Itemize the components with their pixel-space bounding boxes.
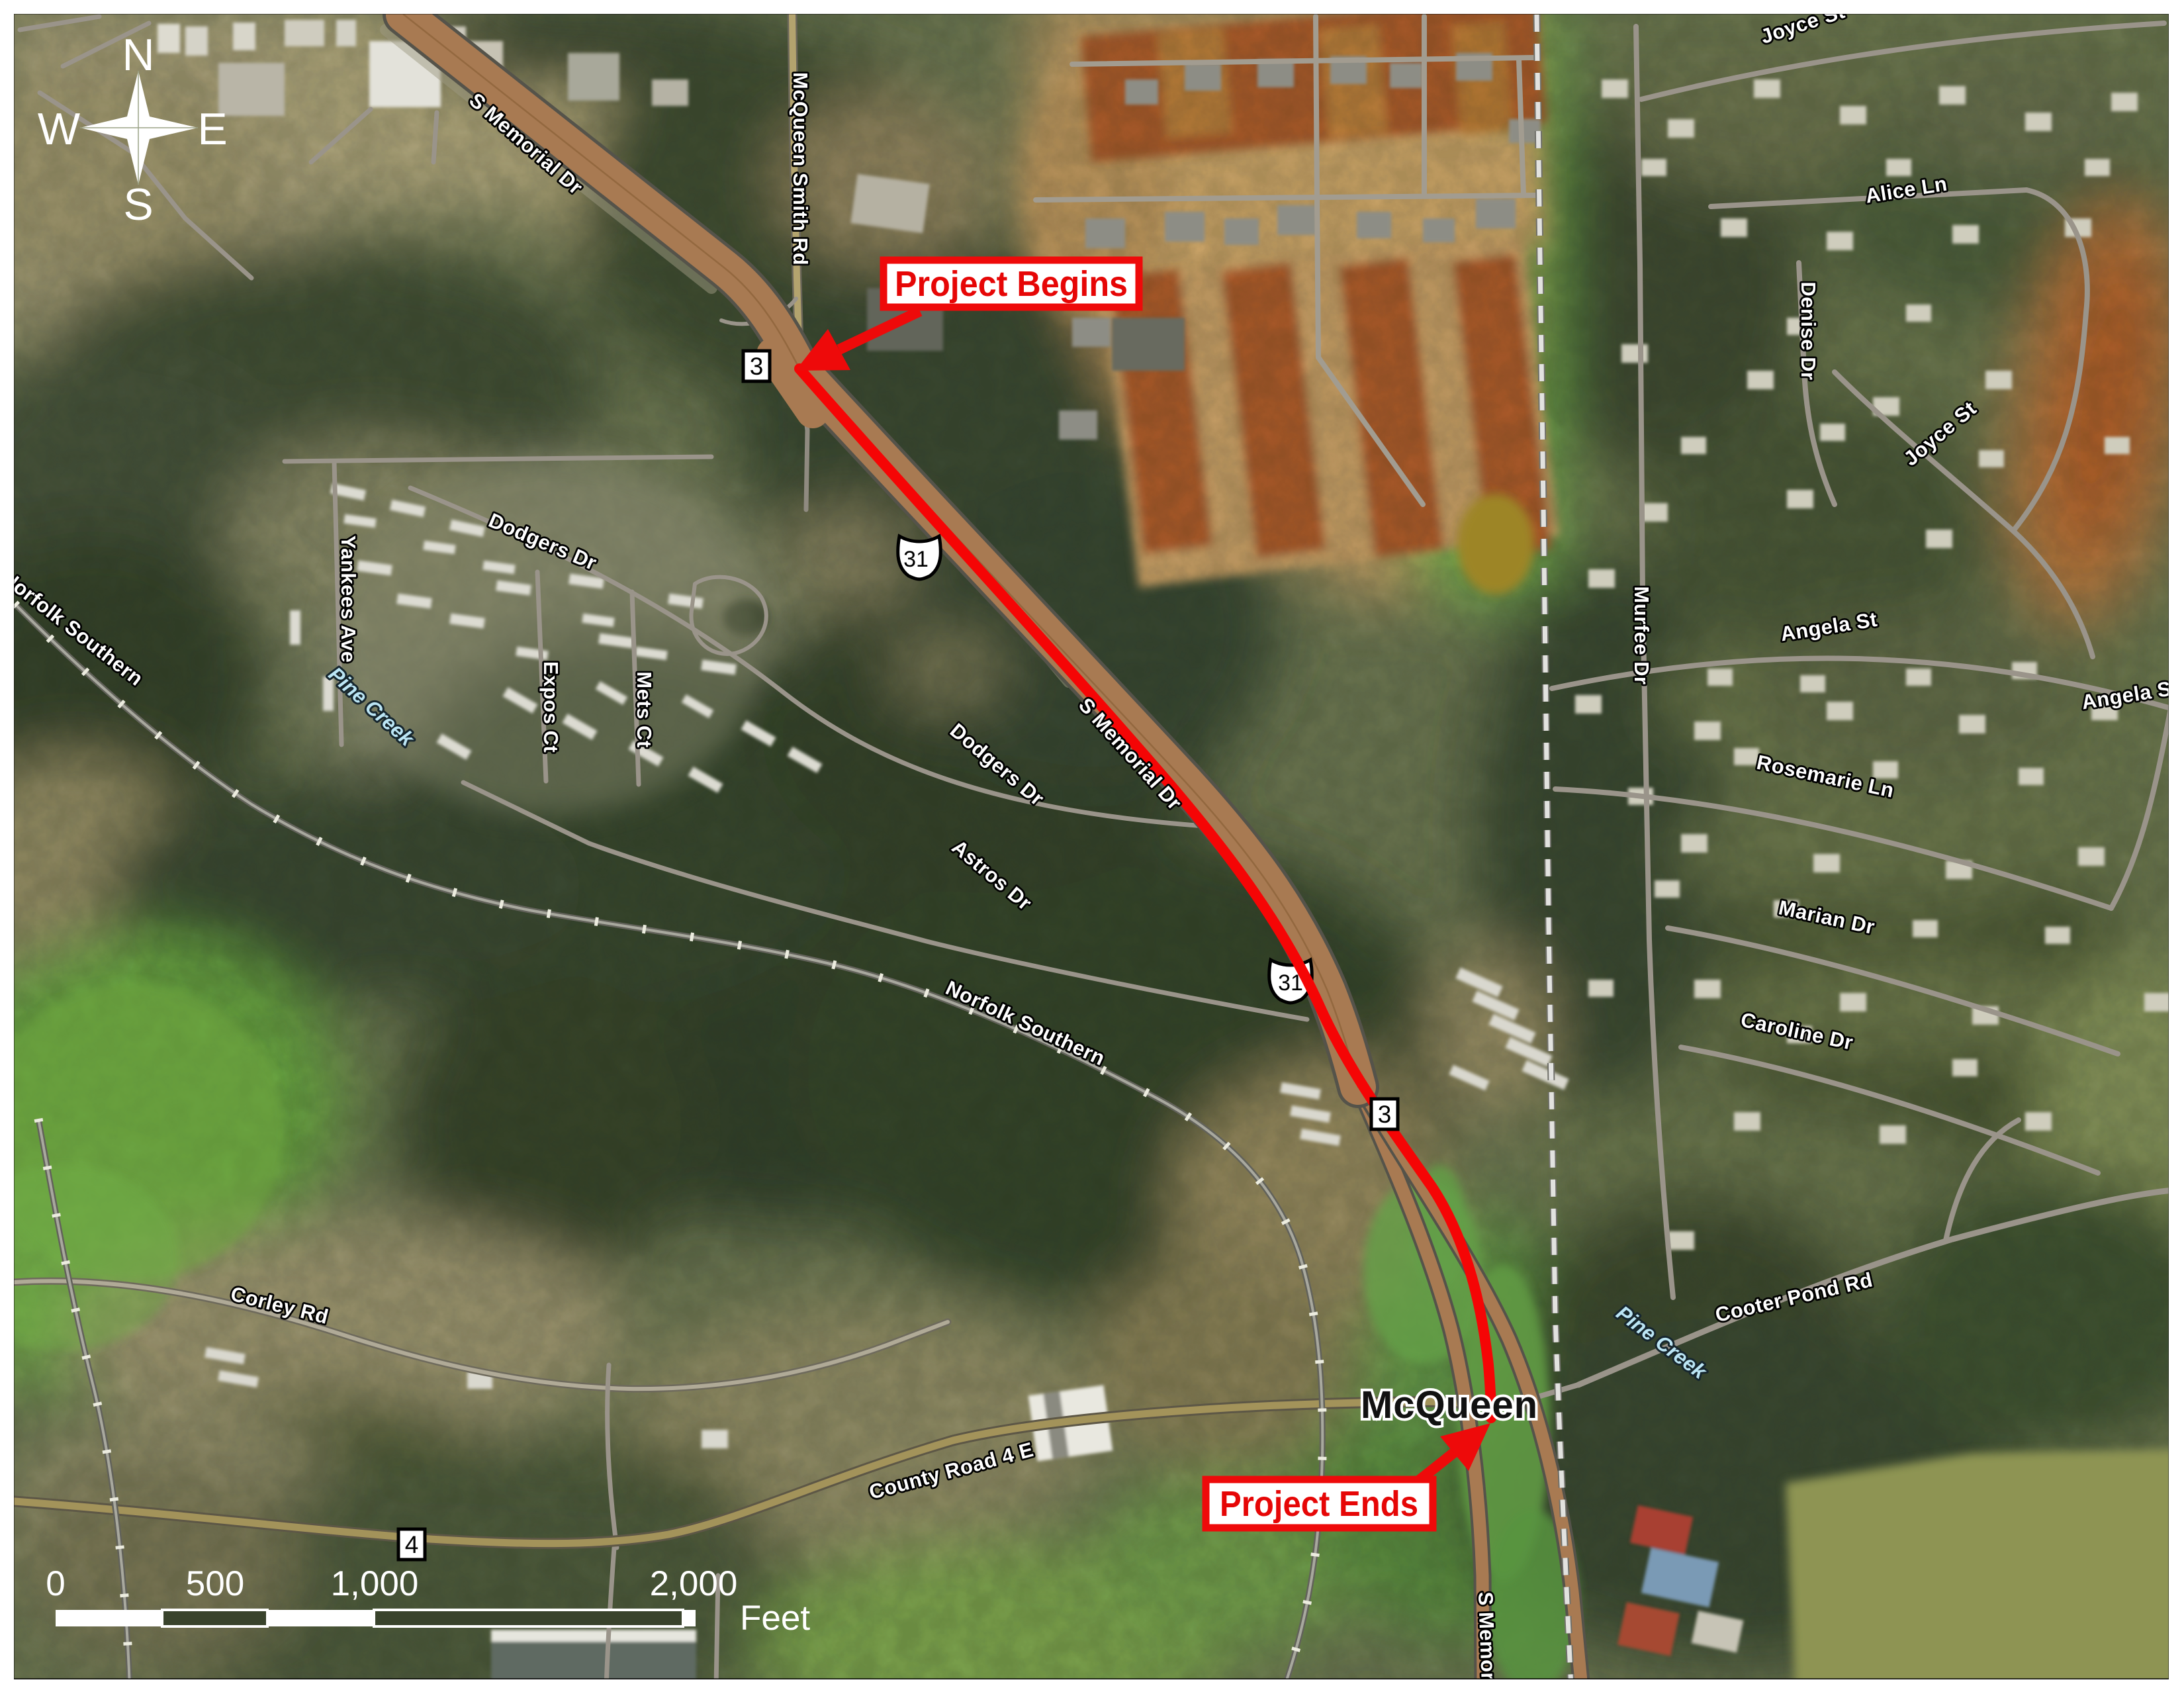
svg-text:W: W — [38, 104, 80, 154]
svg-text:S: S — [123, 179, 153, 230]
svg-text:E: E — [197, 104, 227, 154]
svg-text:1,000: 1,000 — [331, 1564, 419, 1603]
svg-text:Murfee Dr: Murfee Dr — [1630, 586, 1653, 684]
svg-text:Project Begins: Project Begins — [895, 264, 1128, 304]
svg-text:500: 500 — [186, 1564, 244, 1603]
svg-text:31: 31 — [903, 547, 929, 572]
svg-text:Yankees Ave: Yankees Ave — [337, 536, 360, 663]
svg-text:Expos Ct: Expos Ct — [539, 661, 563, 753]
svg-text:Project Ends: Project Ends — [1220, 1484, 1418, 1524]
svg-text:Feet: Feet — [740, 1599, 810, 1638]
svg-text:Mets Ct: Mets Ct — [633, 671, 656, 747]
svg-text:N: N — [122, 30, 154, 80]
svg-text:4: 4 — [405, 1531, 419, 1558]
svg-text:3: 3 — [1378, 1101, 1392, 1128]
svg-text:S Memorial Dr: S Memorial Dr — [1474, 1591, 1502, 1688]
svg-text:McQueen Smith Rd: McQueen Smith Rd — [789, 72, 812, 265]
svg-text:2,000: 2,000 — [650, 1564, 738, 1603]
svg-text:McQueen: McQueen — [1361, 1383, 1538, 1427]
svg-text:0: 0 — [46, 1564, 65, 1603]
svg-text:Denise Dr: Denise Dr — [1797, 281, 1820, 380]
svg-text:3: 3 — [750, 353, 764, 380]
